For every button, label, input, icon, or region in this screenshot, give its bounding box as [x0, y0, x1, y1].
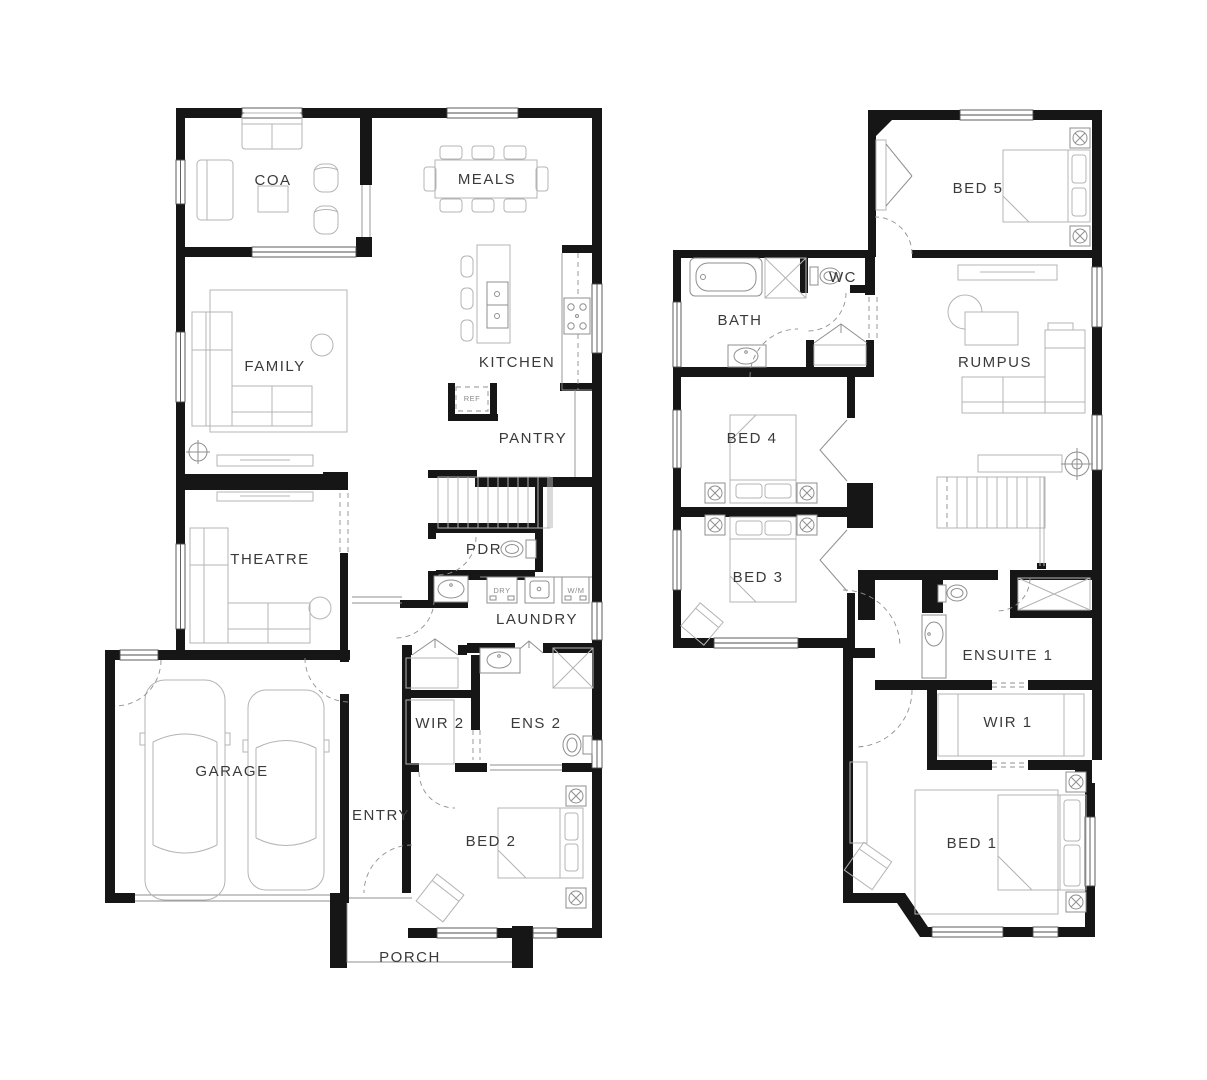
- room-label-bed3: BED 3: [733, 569, 784, 586]
- ground-furniture: [140, 113, 593, 922]
- wir1-opening-bottom: [992, 763, 1028, 767]
- occasional-chair-icon: [314, 164, 338, 192]
- coffee-table-icon: [258, 186, 288, 212]
- rumpus-opening: [869, 297, 877, 338]
- bedside-table-icon: [797, 483, 817, 503]
- occasional-chair-icon: [314, 206, 338, 234]
- appliance-label-wm: W/M: [568, 586, 585, 595]
- theatre-opening: [340, 493, 348, 553]
- first-floor-plan: BED 5 WC BATH RUMPUS BED 4 BED 3 ENSUITE…: [673, 110, 1102, 937]
- vanity-icon: [728, 345, 766, 367]
- robe-shelf-icon: [406, 700, 454, 764]
- car-icon: [140, 680, 230, 900]
- bed-icon: [1003, 150, 1090, 222]
- room-label-bed2: BED 2: [466, 833, 517, 850]
- car-icon: [243, 690, 329, 890]
- hall-opening: [352, 597, 402, 603]
- room-label-rumpus: RUMPUS: [958, 354, 1032, 371]
- room-label-pdr: PDR: [466, 541, 502, 558]
- appliance-label-dry: DRY: [493, 586, 510, 595]
- bed5-door-arc: [875, 217, 912, 254]
- first-walls: [673, 110, 1102, 937]
- toilet-icon: [563, 734, 592, 756]
- bifold-door-icon: [814, 324, 867, 343]
- room-label-ens2: ENS 2: [511, 715, 562, 732]
- bifold-door-icon: [412, 639, 458, 655]
- bedside-table-icon: [566, 786, 586, 806]
- room-label-bed1: BED 1: [947, 835, 998, 852]
- bedside-table-icon: [705, 483, 725, 503]
- games-table-icon: [965, 312, 1018, 345]
- ground-floor-plan: COA MEALS FAMILY KITCHEN PANTRY THEATRE …: [105, 108, 602, 968]
- bathtub-icon: [690, 258, 762, 296]
- room-label-theatre: THEATRE: [230, 551, 309, 568]
- desk-icon: [978, 455, 1062, 472]
- tv-unit-icon: [217, 492, 313, 501]
- bed1-door-arc: [855, 690, 912, 747]
- rug-icon: [915, 790, 1058, 914]
- toilet-icon: [938, 585, 967, 602]
- room-label-ensuite1: ENSUITE 1: [962, 647, 1053, 664]
- linen-shelf-icon: [406, 658, 458, 688]
- bed-icon: [998, 795, 1086, 890]
- robe-door-icon: [876, 140, 912, 210]
- bedside-table-icon: [797, 515, 817, 535]
- floor-plan-svg: COA MEALS FAMILY KITCHEN PANTRY THEATRE …: [0, 0, 1207, 1080]
- bedside-table-icon: [1066, 892, 1086, 912]
- room-label-entry: ENTRY: [352, 807, 410, 824]
- appliance-label-ref: REF: [464, 394, 481, 403]
- room-label-garage: GARAGE: [195, 763, 268, 780]
- linen-robe-icon: [1018, 578, 1090, 610]
- linen-shelf-icon: [814, 345, 866, 365]
- bifold-door-icon: [820, 420, 847, 481]
- bed-icon: [730, 415, 796, 503]
- shower-icon: [765, 258, 806, 298]
- vanity-icon: [434, 576, 468, 602]
- side-table-icon: [309, 597, 331, 619]
- toilet-icon: [501, 540, 536, 558]
- room-label-wir1: WIR 1: [983, 714, 1032, 731]
- room-label-coa: COA: [254, 172, 291, 189]
- room-label-kitchen: KITCHEN: [479, 354, 555, 371]
- wir2-opening: [473, 730, 480, 760]
- coa-opening: [362, 185, 370, 237]
- vanity-icon: [922, 615, 946, 678]
- symbol-marker: [186, 440, 210, 464]
- room-label-wc: WC: [829, 269, 857, 286]
- bedside-table-icon: [705, 515, 725, 535]
- first-windows: [673, 110, 1102, 937]
- vanity-icon: [480, 648, 520, 673]
- bedside-table-icon: [566, 888, 586, 908]
- first-furniture: [681, 128, 1093, 914]
- tv-unit-icon: [217, 455, 313, 466]
- wir1-opening-top: [992, 683, 1028, 687]
- laundry-sink-icon: [525, 577, 554, 603]
- bedside-table-icon: [1066, 772, 1086, 792]
- room-label-wir2: WIR 2: [415, 715, 464, 732]
- cooktop-icon: [564, 298, 590, 334]
- room-label-family: FAMILY: [244, 358, 305, 375]
- side-table-icon: [311, 334, 333, 356]
- room-label-laundry: LAUNDRY: [496, 611, 578, 628]
- bed2-door-arc: [419, 772, 455, 808]
- sofa-icon: [190, 528, 310, 643]
- room-label-bed4: BED 4: [727, 430, 778, 447]
- bifold-door-icon: [820, 530, 847, 591]
- room-label-meals: MEALS: [458, 171, 516, 188]
- bed-icon: [730, 517, 796, 602]
- tv-unit-icon: [958, 265, 1057, 280]
- shower-icon: [553, 648, 593, 688]
- kitchen-island-icon: [461, 245, 510, 343]
- room-label-porch: PORCH: [379, 949, 441, 966]
- symbol-marker: [1061, 448, 1093, 480]
- first-stairs: [937, 455, 1062, 566]
- room-label-bed5: BED 5: [953, 180, 1004, 197]
- armchair-icon: [197, 160, 233, 220]
- room-label-pantry: PANTRY: [499, 430, 567, 447]
- bedside-table-icon: [1070, 128, 1090, 148]
- ens2-slider-door: [490, 765, 562, 770]
- room-label-bath: BATH: [718, 312, 763, 329]
- chair-icon: [416, 874, 464, 922]
- ground-walls: [105, 108, 602, 968]
- floor-plan-page: COA MEALS FAMILY KITCHEN PANTRY THEATRE …: [0, 0, 1207, 1080]
- wc-door-arc: [808, 293, 846, 331]
- bedside-table-icon: [1070, 226, 1090, 246]
